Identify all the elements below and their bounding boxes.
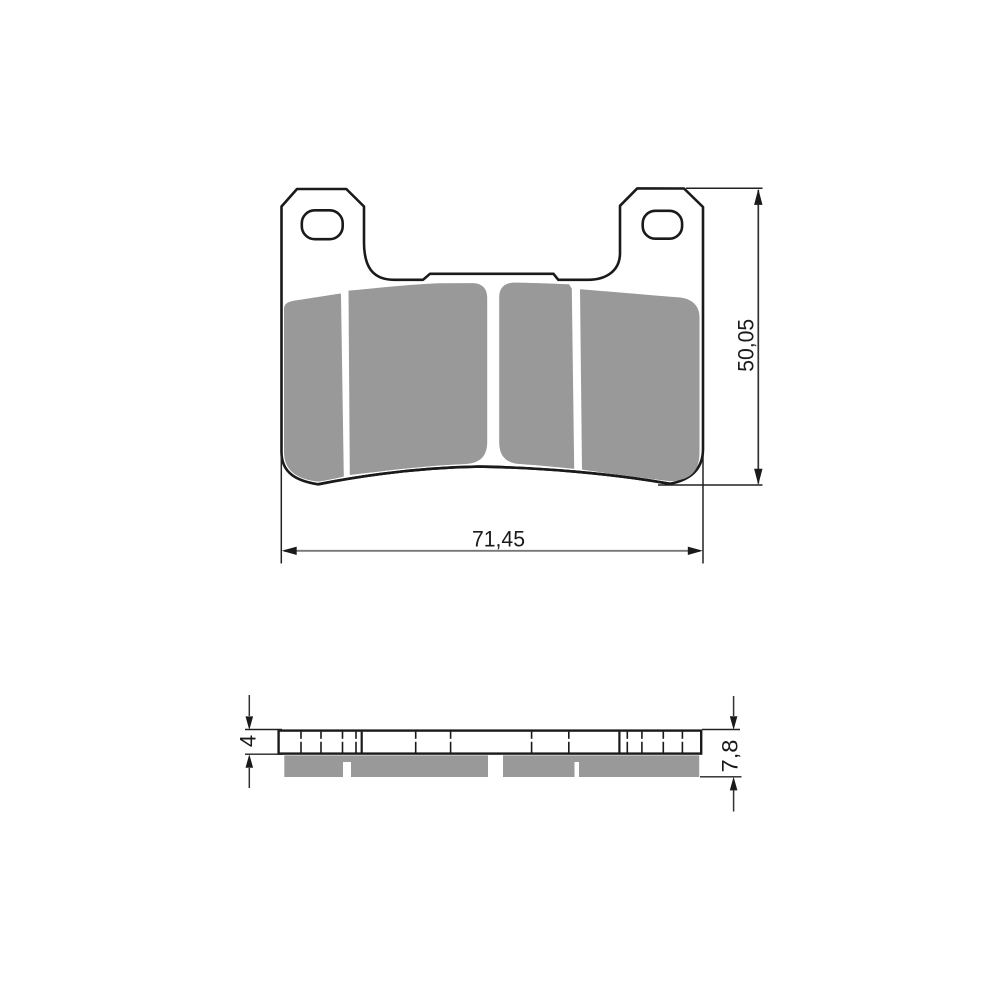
svg-text:4: 4 — [236, 735, 261, 747]
svg-text:50,05: 50,05 — [734, 319, 759, 372]
svg-text:7,8: 7,8 — [717, 740, 742, 773]
svg-text:71,45: 71,45 — [472, 527, 525, 552]
